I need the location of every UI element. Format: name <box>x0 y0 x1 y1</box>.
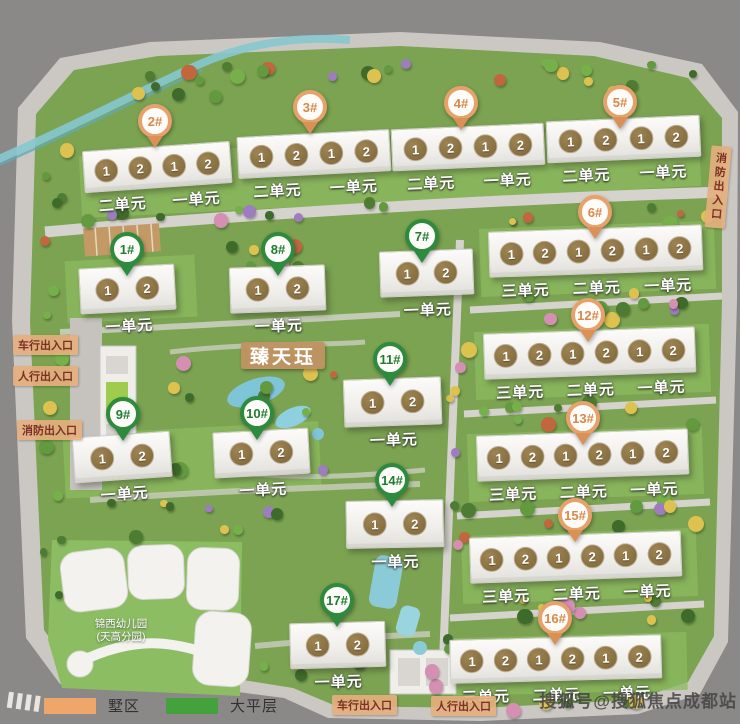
legend-label: 大平层 <box>230 695 278 716</box>
project-title: 臻天珏 <box>241 342 325 369</box>
kindergarten-name: 锦西幼儿园 <box>78 618 164 631</box>
legend-swatch <box>166 698 218 714</box>
watermark: 搜狐号@搜狐焦点成都站 <box>539 687 737 712</box>
legend: 墅区大平层 <box>44 695 304 716</box>
kindergarten-branch: (天高分园) <box>78 631 164 644</box>
legend-label: 墅区 <box>108 695 140 716</box>
entrance-label: 人行出入口 <box>431 696 496 716</box>
site-plan: 1212二单元一单元1212二单元一单元1212二单元一单元1212二单元一单元… <box>0 0 740 724</box>
legend-item: 墅区 <box>44 695 140 716</box>
entrance-label: 人行出入口 <box>13 366 78 386</box>
entrance-label: 车行出入口 <box>13 335 78 355</box>
labels-layer: 臻天珏 锦西幼儿园 (天高分园) 墅区大平层 搜狐号@搜狐焦点成都站 车行出入口… <box>0 0 740 724</box>
entrance-label: 车行出入口 <box>332 695 397 715</box>
legend-item: 大平层 <box>166 695 278 716</box>
kindergarten-label: 锦西幼儿园 (天高分园) <box>78 618 164 644</box>
entrance-label: 消防出入口 <box>704 145 731 228</box>
legend-swatch <box>44 698 96 714</box>
entrance-label: 消防出入口 <box>17 420 82 440</box>
